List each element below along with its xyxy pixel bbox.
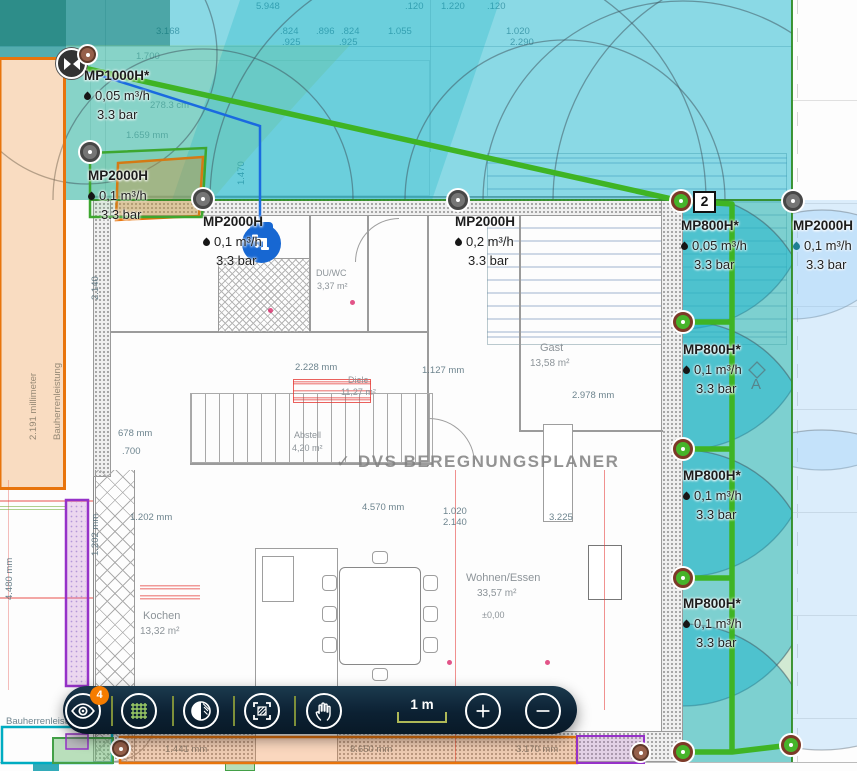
sprinkler-node[interactable]	[448, 190, 468, 210]
pipe-node-brown[interactable]	[632, 744, 649, 761]
sideboard	[588, 545, 622, 600]
dimension-text: 1.700	[136, 51, 160, 62]
green-guide	[0, 509, 66, 510]
grid-toggle-button[interactable]	[121, 693, 157, 729]
pan-button[interactable]	[306, 693, 342, 729]
dimension-text: .824	[280, 26, 299, 37]
droplet-icon	[792, 241, 802, 251]
watermark-text: DVS BEREGNUNGSPLANER	[358, 452, 619, 471]
house-outline	[93, 196, 683, 762]
contrast-button[interactable]	[183, 693, 219, 729]
pink-marker	[268, 308, 273, 313]
dimension-text: .120	[405, 1, 424, 12]
room-label: Kochen	[143, 610, 180, 622]
toolbar-divider	[172, 696, 174, 726]
bottom-line	[0, 762, 857, 763]
focus-area-button[interactable]	[244, 693, 280, 729]
dimension-text: .700	[122, 446, 141, 457]
grid-line	[793, 615, 857, 616]
sprinkler-label[interactable]: MP2000H 0,1 m³/h 3.3 bar	[88, 166, 148, 225]
sprinkler-pressure: 3.3 bar	[88, 205, 148, 225]
dimension-text: 1.202 mm	[90, 514, 101, 556]
pipe-node-brown[interactable]	[79, 46, 96, 63]
scale-label: 1 m	[397, 697, 447, 712]
sprinkler-label[interactable]: MP2000H 0,1 m³/h 3.3 bar	[203, 212, 263, 271]
chair	[423, 637, 438, 653]
droplet-icon	[454, 237, 464, 247]
wall	[519, 216, 521, 432]
hand-icon	[312, 699, 336, 723]
chair	[372, 668, 388, 681]
sprinkler-name: MP2000H	[793, 216, 853, 236]
room-label: 3,37 m²	[317, 281, 348, 291]
pipe-node-brown[interactable]	[112, 740, 129, 757]
dimension-text: .896	[316, 26, 335, 37]
room-label: Diele	[348, 375, 369, 385]
dimension-text: 678 mm	[118, 428, 152, 439]
wall-left	[93, 197, 111, 477]
red-guide	[0, 500, 93, 502]
droplet-icon	[680, 241, 690, 251]
irrigation-planner-canvas: Kochen13,32 m²Wohnen/Essen33,57 m²±0,00G…	[0, 0, 857, 771]
scale-bracket	[397, 712, 447, 723]
dimension-text: 3.168	[156, 26, 180, 37]
room-label: 33,57 m²	[477, 588, 516, 599]
sprinkler-flow: 0,05 m³/h	[84, 86, 150, 106]
dimension-text: 1.659 mm	[126, 130, 168, 141]
dimension-text: 1.055	[388, 26, 412, 37]
pink-marker	[447, 660, 452, 665]
garden-line	[0, 46, 792, 47]
droplet-icon	[682, 365, 692, 375]
droplet-icon	[87, 191, 97, 201]
watermark-check: ✓	[336, 452, 352, 471]
sprinkler-flow: 0,1 m³/h	[793, 236, 853, 256]
room-label: Abstell	[294, 430, 321, 440]
sprinkler-pressure: 3.3 bar	[683, 633, 742, 653]
watermark: ✓ DVS BEREGNUNGSPLANER	[336, 452, 619, 472]
sprinkler-node[interactable]	[80, 142, 100, 162]
dimension-text: 1.020	[443, 506, 467, 517]
room-label: Wohnen/Essen	[466, 572, 540, 584]
bottom-teal-chip	[33, 763, 59, 771]
sprinkler-pressure: 3.3 bar	[203, 251, 263, 271]
sprinkler-pressure: 3.3 bar	[683, 379, 742, 399]
toolbar-divider	[294, 696, 296, 726]
visibility-count-badge: 4	[90, 686, 109, 705]
wall	[519, 430, 663, 432]
dimension-text: 2.140	[443, 517, 467, 528]
valve-icon	[63, 57, 81, 71]
dimension-text: 1.202 mm	[130, 512, 172, 523]
sprinkler-name: MP1000H*	[84, 66, 150, 86]
dimension-text: .824	[341, 26, 360, 37]
sprinkler-flow: 0,1 m³/h	[683, 360, 742, 380]
sprinkler-name: MP800H*	[683, 466, 742, 486]
garden-line	[430, 0, 431, 152]
room-label: 13,32 m²	[140, 626, 179, 637]
sprinkler-name: MP2000H	[455, 212, 515, 232]
chair	[322, 637, 337, 653]
grid-line	[793, 718, 857, 719]
dimension-text: Bauherrenleistung	[52, 363, 63, 440]
dimension-text: 1.220	[441, 1, 465, 12]
toolbar-divider	[233, 696, 235, 726]
red-annotation	[140, 585, 200, 601]
dimension-text: 1.441 mm	[165, 744, 207, 755]
sprinkler-name: MP2000H	[203, 212, 263, 232]
dining-table	[339, 567, 421, 665]
sprinkler-node[interactable]	[193, 189, 213, 209]
droplet-icon	[682, 491, 692, 501]
sprinkler-label[interactable]: MP800H* 0,05 m³/h 3.3 bar	[681, 216, 747, 275]
marker-a-label: A	[751, 376, 761, 393]
room-label: ±0,00	[482, 610, 504, 620]
toolbar-divider	[111, 696, 113, 726]
grid-line	[793, 512, 857, 513]
sprinkler-label[interactable]: MP800H* 0,1 m³/h 3.3 bar	[683, 466, 742, 525]
room-label: DU/WC	[316, 268, 347, 278]
dimension-text: 1.127 mm	[422, 365, 464, 376]
droplet-icon	[202, 237, 212, 247]
contrast-icon	[189, 699, 213, 723]
minus-icon	[532, 700, 554, 722]
dimension-text: 4.480 mm	[4, 558, 15, 600]
dimension-text: 1.020	[506, 26, 530, 37]
sprinkler-name: MP800H*	[683, 594, 742, 614]
sprinkler-flow: 0,1 m³/h	[88, 186, 148, 206]
boundary-dashes	[797, 0, 798, 762]
wall-top	[93, 197, 683, 216]
sprinkler-node-selected[interactable]	[673, 742, 693, 762]
droplet-icon	[682, 619, 692, 629]
sprinkler-label[interactable]: MP800H* 0,1 m³/h 3.3 bar	[683, 340, 742, 399]
dimension-text: 2.228 mm	[295, 362, 337, 373]
dimension-text: 8.650 mm	[350, 744, 392, 755]
room-label: 11,27 m²	[341, 387, 376, 397]
sprinkler-node-selected[interactable]	[673, 439, 693, 459]
grid-line	[793, 306, 857, 307]
sprinkler-name: MP800H*	[683, 340, 742, 360]
dimension-text: 4.570 mm	[362, 502, 404, 513]
grid-line	[793, 100, 857, 101]
sprinkler-pressure: 3.3 bar	[681, 255, 747, 275]
pink-marker	[350, 300, 355, 305]
sprinkler-flow: 0,1 m³/h	[683, 614, 742, 634]
sprinkler-pressure: 3.3 bar	[84, 105, 150, 125]
sprinkler-flow: 0,1 m³/h	[203, 232, 263, 252]
chair	[423, 575, 438, 591]
dimension-text: 5.948	[256, 1, 280, 12]
red-guide	[604, 470, 605, 710]
sprinkler-pressure: 3.3 bar	[455, 251, 515, 271]
sprinkler-node-selected[interactable]	[781, 735, 801, 755]
room-label: 13,58 m²	[530, 358, 569, 369]
sprinkler-node-selected[interactable]	[673, 568, 693, 588]
room-label: 4,20 m²	[292, 443, 323, 453]
dimension-text: 2.140	[90, 276, 101, 300]
focus-area-icon	[250, 699, 274, 723]
dimension-text: 278.3 cm	[150, 100, 189, 111]
sprinkler-label[interactable]: MP2000H 0,1 m³/h 3.3 bar	[793, 216, 853, 275]
chair	[372, 551, 388, 564]
sprinkler-name: MP800H*	[681, 216, 747, 236]
dimension-text: 3.225	[549, 512, 573, 523]
sprinkler-node-selected[interactable]	[673, 312, 693, 332]
wall-right	[661, 197, 683, 763]
sprinkler-node[interactable]	[783, 191, 803, 211]
dimension-text: .925	[282, 37, 301, 48]
dimension-text: 1.470	[236, 161, 247, 185]
sprinkler-flow: 0,1 m³/h	[683, 486, 742, 506]
dimension-text: 2.290	[510, 37, 534, 48]
dimension-text: .120	[487, 1, 506, 12]
sofa	[543, 424, 573, 522]
kitchen-sink	[262, 556, 294, 602]
dimension-text: 2.978 mm	[572, 390, 614, 401]
zone-number-badge[interactable]: 2	[693, 191, 716, 213]
pink-marker	[545, 660, 550, 665]
sprinkler-node-selected[interactable]	[671, 191, 691, 211]
sprinkler-name: MP2000H	[88, 166, 148, 186]
chair	[423, 606, 438, 622]
sprinkler-label[interactable]: MP1000H* 0,05 m³/h 3.3 bar	[84, 66, 150, 125]
grid-line	[793, 409, 857, 410]
dimension-text: 2.191 millimeter	[28, 373, 39, 440]
sprinkler-pressure: 3.3 bar	[683, 505, 742, 525]
plus-icon	[472, 700, 494, 722]
dimension-text: .925	[339, 37, 358, 48]
sprinkler-pressure: 3.3 bar	[793, 255, 853, 275]
dimension-text: 3.170 mm	[516, 744, 558, 755]
grid-icon	[127, 699, 151, 723]
zoom-in-button[interactable]	[465, 693, 501, 729]
room-label: Gast	[540, 342, 563, 354]
zoom-out-button[interactable]	[525, 693, 561, 729]
sprinkler-flow: 0,05 m³/h	[681, 236, 747, 256]
droplet-icon	[83, 91, 93, 101]
sprinkler-label[interactable]: MP800H* 0,1 m³/h 3.3 bar	[683, 594, 742, 653]
chair	[322, 606, 337, 622]
sprinkler-flow: 0,2 m³/h	[455, 232, 515, 252]
bottom-green-chip	[225, 763, 255, 771]
green-guide	[0, 506, 66, 507]
chair	[322, 575, 337, 591]
sprinkler-label[interactable]: MP2000H 0,2 m³/h 3.3 bar	[455, 212, 515, 271]
